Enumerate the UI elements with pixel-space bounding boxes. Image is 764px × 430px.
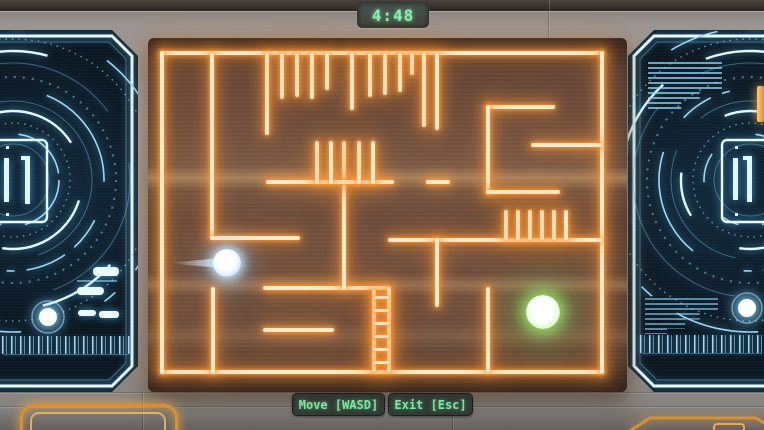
maze-wall [398,53,402,92]
maze-wall [504,210,508,240]
maze-wall [410,53,414,75]
maze-wall [210,236,300,240]
hud-status-pill [93,267,119,276]
maze-wall [325,53,329,90]
maze-wall [374,296,389,299]
maze-wall [374,322,389,325]
maze-wall [486,105,490,194]
maze-wall [263,286,391,290]
maze-wall [160,51,604,55]
maze-wall [310,53,314,99]
maze-wall [426,180,450,184]
bottom-left-console-bezel-inner [30,412,166,430]
maze-wall [564,210,568,240]
maze-wall [160,51,164,374]
maze-wall [528,210,532,240]
game-screen: 4:48 [0,0,764,430]
move-hint: Move [WASD] [292,393,385,416]
maze-wall [371,141,375,184]
hud-barcode [640,335,764,353]
maze-wall [315,141,319,184]
maze-wall [540,210,544,240]
maze-wall [600,51,604,374]
hud-status-pill [99,311,119,318]
maze-wall [435,238,439,307]
hud-indicator-light [39,308,57,326]
maze-wall [486,105,555,109]
hud-status-pill [77,287,104,295]
wall-seam [548,0,549,37]
maze-wall [374,361,389,364]
maze-wall [210,53,214,238]
bottom-right-console-bezel [624,410,764,430]
panel-border [0,36,132,386]
timer-display: 4:48 [357,2,429,28]
maze-wall [350,53,354,110]
hud-target-square [722,140,764,222]
maze-wall [374,335,389,338]
maze-wall [486,190,560,194]
maze-wall [552,210,556,240]
move-hint-label: Move [WASD] [299,398,378,412]
left-hud-panel [0,30,138,392]
maze-wall [486,287,490,372]
maze-wall [387,288,391,372]
maze-wall [329,141,333,184]
maze-wall [357,141,361,184]
maze-wall [422,53,426,127]
maze-wall [263,328,334,332]
maze-wall [265,53,269,135]
player-orb [213,249,241,277]
maze-wall [160,370,604,374]
maze-wall [342,141,346,290]
maze-wall [372,290,376,372]
maze-wall [516,210,520,240]
maze-wall [435,53,439,130]
maze-wall [295,53,299,97]
exit-button[interactable]: Exit [Esc] [388,393,473,416]
maze-wall [374,309,389,312]
maze-wall [280,53,284,99]
goal-orb [526,295,560,329]
maze-wall [368,53,372,97]
maze-wall [531,143,602,147]
right-edge-lamp [757,86,764,122]
maze-wall [211,287,215,374]
right-hud-panel [628,30,764,392]
timer-value: 4:48 [372,6,415,25]
maze-wall [388,238,602,242]
maze-panel [148,38,627,392]
wood-band [148,166,627,190]
maze-wall [374,348,389,351]
hud-barcode [2,336,130,354]
maze-wall [383,53,387,95]
hud-indicator-light [738,299,756,317]
exit-button-label: Exit [Esc] [394,398,466,412]
